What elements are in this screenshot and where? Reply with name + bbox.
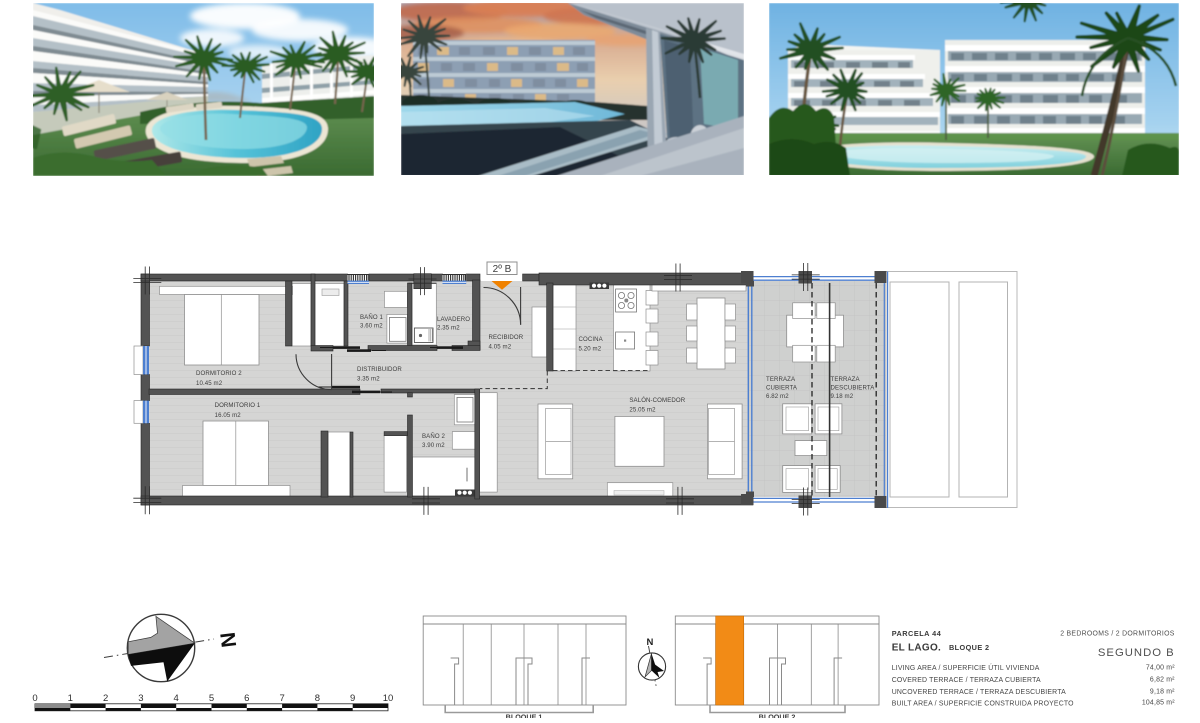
svg-text:2.35 m2: 2.35 m2 bbox=[437, 325, 460, 332]
svg-text:DESCUBIERTA: DESCUBIERTA bbox=[831, 385, 876, 392]
svg-text:COVERED TERRACE / TERRAZA CUBI: COVERED TERRACE / TERRAZA CUBIERTA bbox=[892, 677, 1041, 684]
svg-text:N: N bbox=[215, 631, 240, 649]
svg-text:9,18 m²: 9,18 m² bbox=[1150, 689, 1175, 696]
svg-text:7: 7 bbox=[279, 693, 284, 704]
svg-text:6.82 m2: 6.82 m2 bbox=[766, 393, 789, 400]
svg-text:DORMITORIO 1: DORMITORIO 1 bbox=[215, 402, 261, 409]
svg-text:RECIBIDOR: RECIBIDOR bbox=[489, 334, 524, 341]
svg-text:TERRAZA: TERRAZA bbox=[831, 376, 861, 383]
svg-text:2 BEDROOMS / 2 DORMITORIOS: 2 BEDROOMS / 2 DORMITORIOS bbox=[1060, 631, 1175, 638]
svg-text:SEGUNDO B: SEGUNDO B bbox=[1098, 647, 1175, 659]
svg-text:BAÑO 2: BAÑO 2 bbox=[422, 433, 445, 440]
svg-text:SALÓN-COMEDOR: SALÓN-COMEDOR bbox=[629, 397, 685, 404]
svg-text:BLOQUE 2: BLOQUE 2 bbox=[949, 643, 990, 652]
svg-text:104,85 m²: 104,85 m² bbox=[1142, 700, 1175, 707]
svg-text:16.05 m2: 16.05 m2 bbox=[215, 412, 242, 419]
svg-text:DISTRIBUIDOR: DISTRIBUIDOR bbox=[357, 366, 402, 373]
svg-text:UNCOVERED TERRACE / TERRAZA DE: UNCOVERED TERRACE / TERRAZA DESCUBIERTA bbox=[892, 689, 1066, 696]
svg-text:DORMITORIO 2: DORMITORIO 2 bbox=[196, 370, 242, 377]
svg-text:PARCELA 44: PARCELA 44 bbox=[892, 629, 942, 638]
svg-text:3: 3 bbox=[138, 693, 143, 704]
svg-text:10: 10 bbox=[383, 693, 394, 704]
svg-text:N: N bbox=[647, 637, 654, 648]
svg-text:4.05 m2: 4.05 m2 bbox=[489, 344, 512, 351]
svg-text:BAÑO 1: BAÑO 1 bbox=[360, 314, 383, 321]
svg-text:EL LAGO.: EL LAGO. bbox=[892, 643, 941, 654]
svg-text:5: 5 bbox=[209, 693, 214, 704]
svg-text:3.35 m2: 3.35 m2 bbox=[357, 376, 380, 383]
svg-text:BLOQUE 2: BLOQUE 2 bbox=[759, 713, 796, 719]
svg-text:8: 8 bbox=[315, 693, 320, 704]
svg-text:6: 6 bbox=[244, 693, 249, 704]
svg-text:COCINA: COCINA bbox=[579, 336, 604, 343]
svg-text:3.90 m2: 3.90 m2 bbox=[422, 442, 445, 449]
svg-text:LAVADERO: LAVADERO bbox=[437, 316, 470, 323]
svg-text:6,82 m²: 6,82 m² bbox=[1150, 677, 1175, 684]
svg-text:LIVING AREA / SUPERFICIE ÚTIL: LIVING AREA / SUPERFICIE ÚTIL VIVIENDA bbox=[892, 663, 1040, 672]
svg-text:5.20 m2: 5.20 m2 bbox=[579, 346, 602, 353]
svg-text:TERRAZA: TERRAZA bbox=[766, 376, 796, 383]
svg-text:74,00 m²: 74,00 m² bbox=[1146, 664, 1175, 671]
svg-text:3.60 m2: 3.60 m2 bbox=[360, 323, 383, 330]
svg-text:1: 1 bbox=[68, 693, 73, 704]
svg-text:BLOQUE 1: BLOQUE 1 bbox=[506, 713, 543, 719]
svg-text:CUBIERTA: CUBIERTA bbox=[766, 385, 798, 392]
svg-text:9.18 m2: 9.18 m2 bbox=[831, 393, 854, 400]
svg-text:4: 4 bbox=[174, 693, 179, 704]
svg-text:2º B: 2º B bbox=[493, 264, 512, 275]
svg-text:BUILT AREA / SUPERFICIE CONSTR: BUILT AREA / SUPERFICIE CONSTRUIDA PROYE… bbox=[892, 700, 1074, 707]
svg-text:25.05 m2: 25.05 m2 bbox=[629, 407, 656, 414]
svg-text:2: 2 bbox=[103, 693, 108, 704]
svg-text:0: 0 bbox=[32, 693, 37, 704]
svg-text:10.45 m2: 10.45 m2 bbox=[196, 380, 223, 387]
svg-text:9: 9 bbox=[350, 693, 355, 704]
